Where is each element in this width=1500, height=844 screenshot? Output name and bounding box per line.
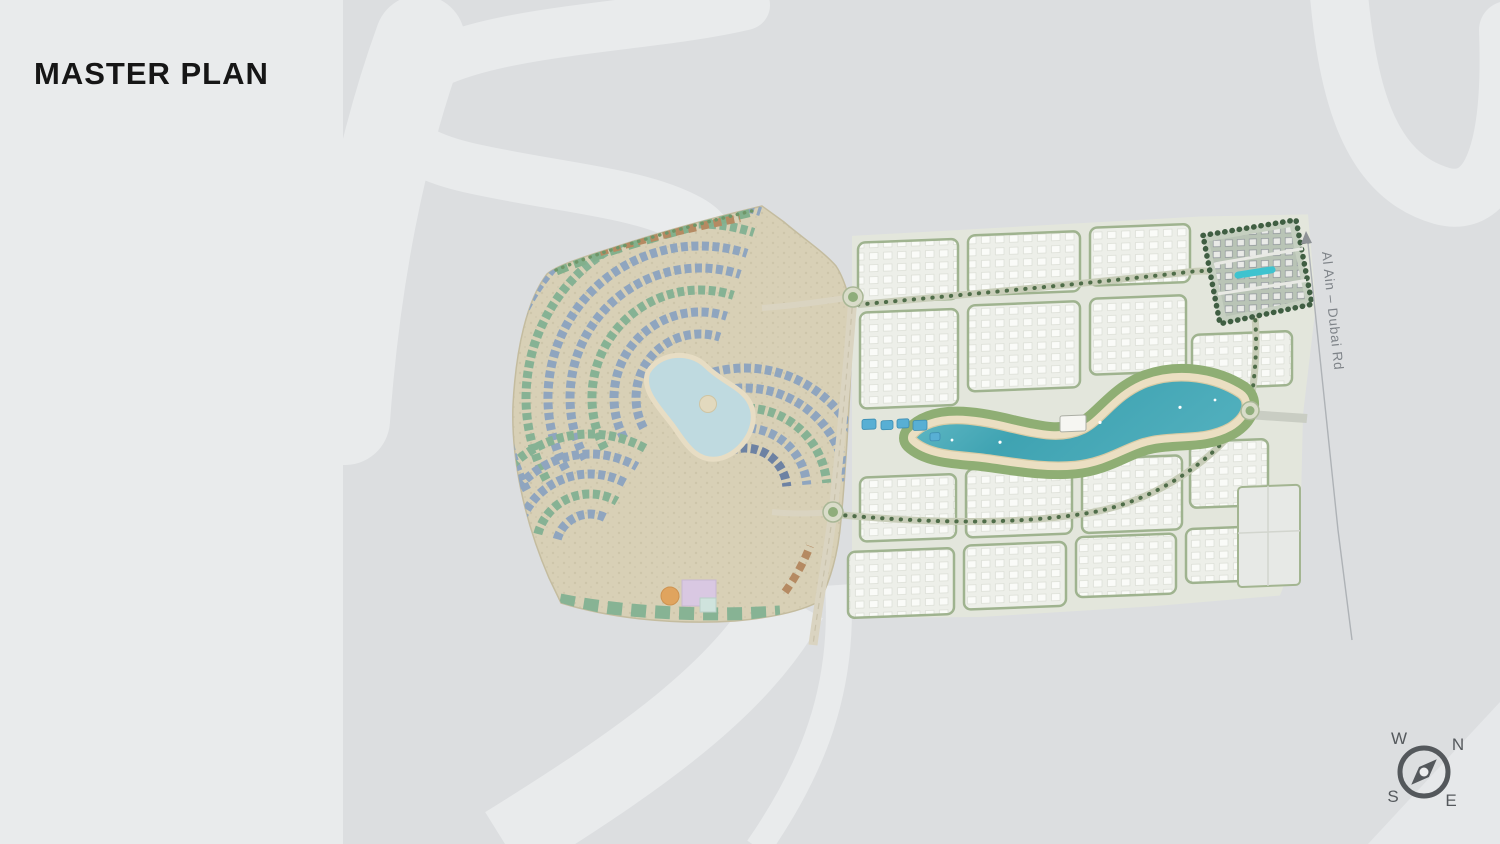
vacant-parcel-outline bbox=[1238, 485, 1300, 587]
residential-block bbox=[858, 239, 958, 303]
south-roundabout bbox=[823, 502, 843, 522]
ribbon-swoosh-wide bbox=[505, 600, 790, 844]
compass-south-label: S bbox=[1387, 787, 1398, 806]
master-plan-slide: MASTER PLAN bbox=[0, 0, 1500, 844]
highway-label: Al Ain – Dubai Rd bbox=[1319, 251, 1346, 371]
residential-block bbox=[964, 542, 1066, 610]
new-phase-community bbox=[836, 212, 1316, 622]
residential-block bbox=[968, 301, 1080, 391]
page-title: MASTER PLAN bbox=[34, 56, 269, 92]
vacant-parcel bbox=[1238, 485, 1300, 587]
northeast-district bbox=[1203, 219, 1312, 324]
residential-block bbox=[848, 548, 954, 618]
north-roundabout bbox=[843, 287, 863, 307]
established-community bbox=[480, 180, 867, 622]
compass-west-label: W bbox=[1391, 729, 1407, 748]
residential-block bbox=[1090, 295, 1186, 375]
compass-north-label: N bbox=[1452, 735, 1464, 754]
residential-block bbox=[1076, 533, 1176, 597]
compass-east-label: E bbox=[1445, 791, 1456, 810]
clubhouse bbox=[1060, 415, 1086, 432]
community-facility bbox=[700, 598, 716, 612]
residential-block bbox=[860, 474, 956, 542]
left-light-band bbox=[0, 0, 343, 844]
master-plan-map: Al Ain – Dubai Rd W N S E bbox=[0, 0, 1500, 844]
residential-block bbox=[860, 309, 958, 409]
ribbon-u-curve bbox=[1337, 0, 1500, 198]
play-area bbox=[661, 587, 679, 605]
compass-hub bbox=[1420, 768, 1429, 777]
lagoon-island bbox=[700, 396, 717, 413]
corner-wedge bbox=[1368, 702, 1500, 844]
east-roundabout bbox=[1241, 401, 1259, 420]
ribbon-left-fill bbox=[345, 40, 420, 420]
